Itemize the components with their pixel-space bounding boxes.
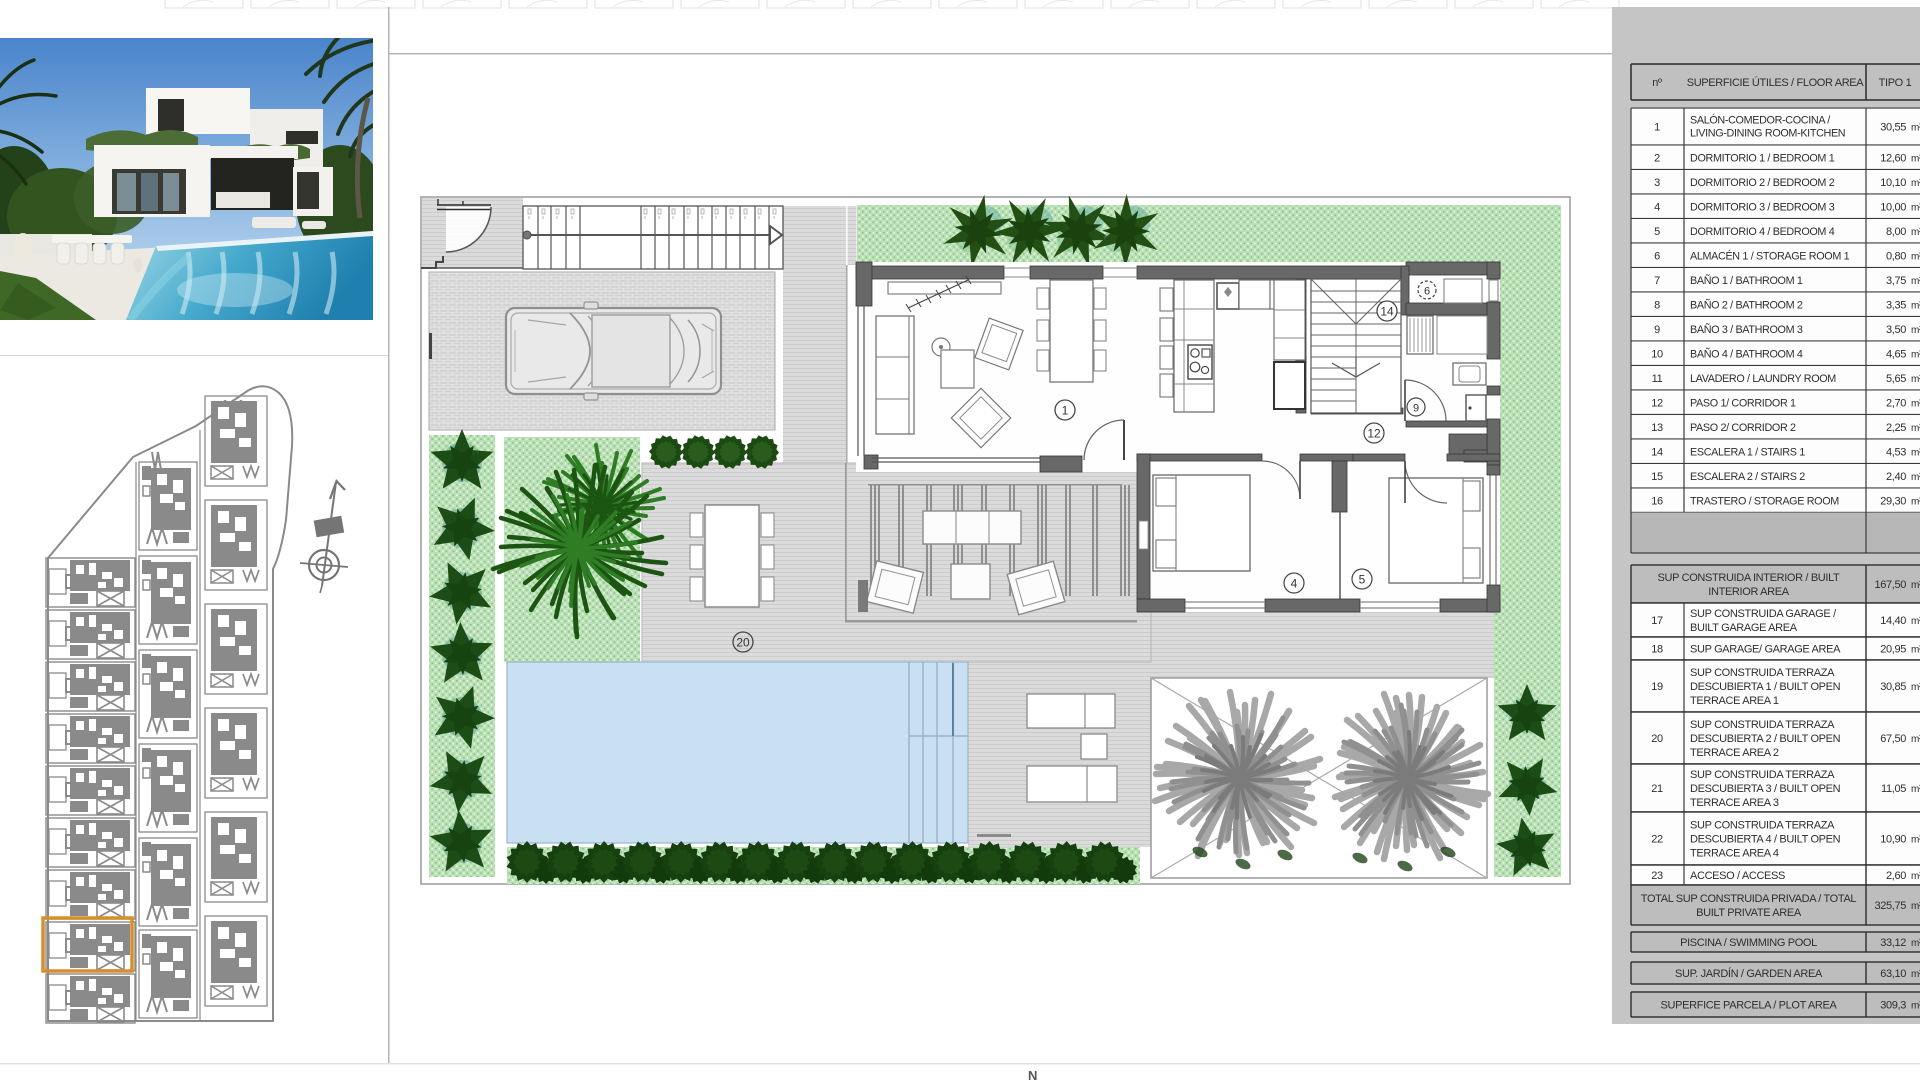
svg-text:SUPERFICIE ÚTILES / FLOOR AREA: SUPERFICIE ÚTILES / FLOOR AREA xyxy=(1687,76,1865,89)
svg-text:m²: m² xyxy=(1911,276,1920,287)
svg-text:3,35: 3,35 xyxy=(1886,299,1906,311)
svg-text:TERRACE AREA 4: TERRACE AREA 4 xyxy=(1690,848,1779,860)
svg-text:m²: m² xyxy=(1911,227,1920,238)
svg-text:BUILT PRIVATE AREA: BUILT PRIVATE AREA xyxy=(1696,907,1802,919)
svg-text:8: 8 xyxy=(1654,299,1660,311)
svg-text:20: 20 xyxy=(736,636,750,650)
svg-text:10: 10 xyxy=(1651,348,1663,360)
svg-text:2: 2 xyxy=(1654,152,1660,164)
svg-text:20: 20 xyxy=(1651,733,1663,745)
svg-text:23: 23 xyxy=(1651,870,1663,882)
svg-text:BAÑO 2 / BATHROOM 2: BAÑO 2 / BATHROOM 2 xyxy=(1690,298,1803,311)
svg-text:BAÑO 4 / BATHROOM 4: BAÑO 4 / BATHROOM 4 xyxy=(1690,347,1803,360)
svg-text:BUILT GARAGE AREA: BUILT GARAGE AREA xyxy=(1690,622,1798,634)
svg-text:m²: m² xyxy=(1911,580,1920,591)
svg-text:TERRACE AREA 3: TERRACE AREA 3 xyxy=(1690,797,1779,809)
svg-text:6: 6 xyxy=(1424,286,1430,298)
svg-text:ALMACÉN 1 / STORAGE ROOM 1: ALMACÉN 1 / STORAGE ROOM 1 xyxy=(1690,249,1850,262)
svg-text:DORMITORIO 3 / BEDROOM 3: DORMITORIO 3 / BEDROOM 3 xyxy=(1690,201,1835,213)
svg-text:13: 13 xyxy=(1651,422,1663,434)
svg-text:4: 4 xyxy=(1291,577,1298,591)
svg-text:12,60: 12,60 xyxy=(1880,152,1906,164)
svg-text:20,95: 20,95 xyxy=(1880,644,1906,656)
svg-text:9: 9 xyxy=(1413,403,1419,415)
svg-text:SUP CONSTRUIDA TERRAZA: SUP CONSTRUIDA TERRAZA xyxy=(1690,769,1835,781)
svg-text:5: 5 xyxy=(1654,226,1660,238)
svg-text:3,50: 3,50 xyxy=(1886,324,1906,336)
svg-text:TIPO 1: TIPO 1 xyxy=(1879,77,1912,89)
svg-text:14: 14 xyxy=(1380,305,1394,319)
svg-text:ACCESO / ACCESS: ACCESO / ACCESS xyxy=(1690,870,1785,882)
svg-text:m²: m² xyxy=(1911,1001,1920,1012)
svg-text:67,50: 67,50 xyxy=(1880,733,1906,745)
svg-text:BAÑO 3 / BATHROOM 3: BAÑO 3 / BATHROOM 3 xyxy=(1690,323,1803,336)
svg-text:9: 9 xyxy=(1654,324,1660,336)
svg-text:29,30: 29,30 xyxy=(1880,495,1906,507)
svg-text:m²: m² xyxy=(1911,496,1920,507)
svg-text:30,55: 30,55 xyxy=(1880,122,1906,134)
svg-text:m²: m² xyxy=(1911,871,1920,882)
svg-text:DORMITORIO 4 / BEDROOM 4: DORMITORIO 4 / BEDROOM 4 xyxy=(1690,226,1835,238)
svg-text:m²: m² xyxy=(1911,202,1920,213)
svg-text:11,05: 11,05 xyxy=(1881,783,1906,795)
svg-text:10,90: 10,90 xyxy=(1880,834,1906,846)
svg-text:m²: m² xyxy=(1911,178,1920,189)
svg-text:PISCINA / SWIMMING POOL: PISCINA / SWIMMING POOL xyxy=(1680,937,1817,949)
svg-text:nº: nº xyxy=(1652,77,1662,89)
svg-text:2,60: 2,60 xyxy=(1886,870,1906,882)
svg-text:m²: m² xyxy=(1911,123,1920,134)
svg-text:SUP. JARDÍN / GARDEN AREA: SUP. JARDÍN / GARDEN AREA xyxy=(1675,967,1823,980)
svg-text:16: 16 xyxy=(1651,495,1663,507)
svg-text:10,00: 10,00 xyxy=(1880,201,1906,213)
svg-text:m²: m² xyxy=(1911,901,1920,912)
svg-text:TRASTERO / STORAGE ROOM: TRASTERO / STORAGE ROOM xyxy=(1690,495,1839,507)
svg-text:1: 1 xyxy=(1062,404,1069,418)
svg-text:INTERIOR AREA: INTERIOR AREA xyxy=(1708,586,1789,598)
svg-text:m²: m² xyxy=(1911,616,1920,627)
svg-text:0,80: 0,80 xyxy=(1886,250,1906,262)
svg-text:SUP CONSTRUIDA TERRAZA: SUP CONSTRUIDA TERRAZA xyxy=(1690,719,1835,731)
svg-text:30,85: 30,85 xyxy=(1880,681,1906,693)
svg-text:SUP CONSTRUIDA TERRAZA: SUP CONSTRUIDA TERRAZA xyxy=(1690,667,1835,679)
svg-text:19: 19 xyxy=(1651,681,1663,693)
svg-text:10,10: 10,10 xyxy=(1880,177,1906,189)
svg-text:DESCUBIERTA 1 / BUILT OPEN: DESCUBIERTA 1 / BUILT OPEN xyxy=(1690,681,1841,693)
svg-text:m²: m² xyxy=(1911,325,1920,336)
svg-text:m²: m² xyxy=(1911,423,1920,434)
svg-text:m²: m² xyxy=(1911,682,1920,693)
svg-text:m²: m² xyxy=(1911,251,1920,262)
svg-text:63,10: 63,10 xyxy=(1880,968,1906,980)
svg-text:m²: m² xyxy=(1911,784,1920,795)
svg-text:m²: m² xyxy=(1911,300,1920,311)
svg-text:15: 15 xyxy=(1651,471,1663,483)
svg-text:LAVADERO / LAUNDRY ROOM: LAVADERO / LAUNDRY ROOM xyxy=(1690,373,1836,385)
svg-text:11: 11 xyxy=(1652,373,1663,385)
svg-text:DESCUBIERTA 4 / BUILT OPEN: DESCUBIERTA 4 / BUILT OPEN xyxy=(1690,834,1841,846)
svg-text:309,3: 309,3 xyxy=(1880,1000,1906,1012)
svg-text:SUP GARAGE/ GARAGE AREA: SUP GARAGE/ GARAGE AREA xyxy=(1690,644,1841,656)
svg-text:14,40: 14,40 xyxy=(1880,615,1906,627)
svg-text:4: 4 xyxy=(1654,201,1660,213)
svg-text:5: 5 xyxy=(1359,573,1366,587)
svg-text:1: 1 xyxy=(1654,122,1660,134)
svg-text:2,40: 2,40 xyxy=(1886,471,1906,483)
svg-text:DORMITORIO 1 / BEDROOM 1: DORMITORIO 1 / BEDROOM 1 xyxy=(1690,152,1835,164)
svg-text:SUPERFICE PARCELA / PLOT AREA: SUPERFICE PARCELA / PLOT AREA xyxy=(1661,1000,1838,1012)
svg-text:m²: m² xyxy=(1911,153,1920,164)
svg-text:325,75: 325,75 xyxy=(1874,900,1906,912)
svg-text:12: 12 xyxy=(1651,397,1663,409)
svg-text:DORMITORIO 2 / BEDROOM 2: DORMITORIO 2 / BEDROOM 2 xyxy=(1690,177,1835,189)
svg-text:4,53: 4,53 xyxy=(1886,446,1906,458)
svg-text:TERRACE AREA 1: TERRACE AREA 1 xyxy=(1690,695,1779,707)
svg-text:167,50: 167,50 xyxy=(1874,579,1906,591)
svg-text:DESCUBIERTA 2 / BUILT OPEN: DESCUBIERTA 2 / BUILT OPEN xyxy=(1690,733,1841,745)
svg-text:5,65: 5,65 xyxy=(1886,373,1906,385)
svg-text:m²: m² xyxy=(1911,645,1920,656)
svg-text:3: 3 xyxy=(1654,177,1660,189)
svg-text:m²: m² xyxy=(1911,447,1920,458)
svg-text:BAÑO 1 / BATHROOM 1: BAÑO 1 / BATHROOM 1 xyxy=(1690,274,1803,287)
svg-text:17: 17 xyxy=(1651,615,1663,627)
svg-text:21: 21 xyxy=(1651,783,1663,795)
svg-text:22: 22 xyxy=(1651,834,1663,846)
svg-text:2,25: 2,25 xyxy=(1886,422,1906,434)
svg-text:m²: m² xyxy=(1911,969,1920,980)
svg-text:ESCALERA 1 / STAIRS 1: ESCALERA 1 / STAIRS 1 xyxy=(1690,446,1805,458)
svg-text:6: 6 xyxy=(1654,250,1660,262)
svg-text:12: 12 xyxy=(1367,427,1381,441)
svg-text:N: N xyxy=(1028,1068,1037,1080)
svg-text:SALÓN-COMEDOR-COCINA /: SALÓN-COMEDOR-COCINA / xyxy=(1690,114,1830,127)
svg-text:m²: m² xyxy=(1911,835,1920,846)
svg-text:LIVING-DINING ROOM-KITCHEN: LIVING-DINING ROOM-KITCHEN xyxy=(1690,128,1845,140)
svg-text:18: 18 xyxy=(1651,644,1663,656)
svg-text:3,75: 3,75 xyxy=(1886,275,1906,287)
svg-text:14: 14 xyxy=(1651,446,1663,458)
svg-text:PASO 1/ CORRIDOR 1: PASO 1/ CORRIDOR 1 xyxy=(1690,397,1796,409)
svg-text:4,65: 4,65 xyxy=(1886,348,1906,360)
svg-text:8,00: 8,00 xyxy=(1886,226,1906,238)
svg-text:m²: m² xyxy=(1911,734,1920,745)
svg-text:m²: m² xyxy=(1911,938,1920,949)
svg-text:7: 7 xyxy=(1654,275,1660,287)
svg-text:2,70: 2,70 xyxy=(1886,397,1906,409)
svg-text:PASO 2/ CORRIDOR 2: PASO 2/ CORRIDOR 2 xyxy=(1690,422,1796,434)
svg-text:m²: m² xyxy=(1911,472,1920,483)
svg-text:33,12: 33,12 xyxy=(1880,937,1906,949)
svg-text:DESCUBIERTA 3 / BUILT OPEN: DESCUBIERTA 3 / BUILT OPEN xyxy=(1690,783,1841,795)
svg-text:SUP CONSTRUIDA TERRAZA: SUP CONSTRUIDA TERRAZA xyxy=(1690,820,1835,832)
svg-text:m²: m² xyxy=(1911,349,1920,360)
svg-text:SUP CONSTRUIDA GARAGE /: SUP CONSTRUIDA GARAGE / xyxy=(1690,608,1837,620)
svg-text:SUP CONSTRUIDA INTERIOR / BUIL: SUP CONSTRUIDA INTERIOR / BUILT xyxy=(1658,572,1841,584)
svg-text:ESCALERA 2 / STAIRS 2: ESCALERA 2 / STAIRS 2 xyxy=(1690,471,1805,483)
svg-text:TERRACE AREA 2: TERRACE AREA 2 xyxy=(1690,747,1779,759)
svg-text:m²: m² xyxy=(1911,374,1920,385)
svg-text:TOTAL SUP CONSTRUIDA PRIVADA /: TOTAL SUP CONSTRUIDA PRIVADA / TOTAL xyxy=(1641,893,1857,905)
svg-text:m²: m² xyxy=(1911,398,1920,409)
